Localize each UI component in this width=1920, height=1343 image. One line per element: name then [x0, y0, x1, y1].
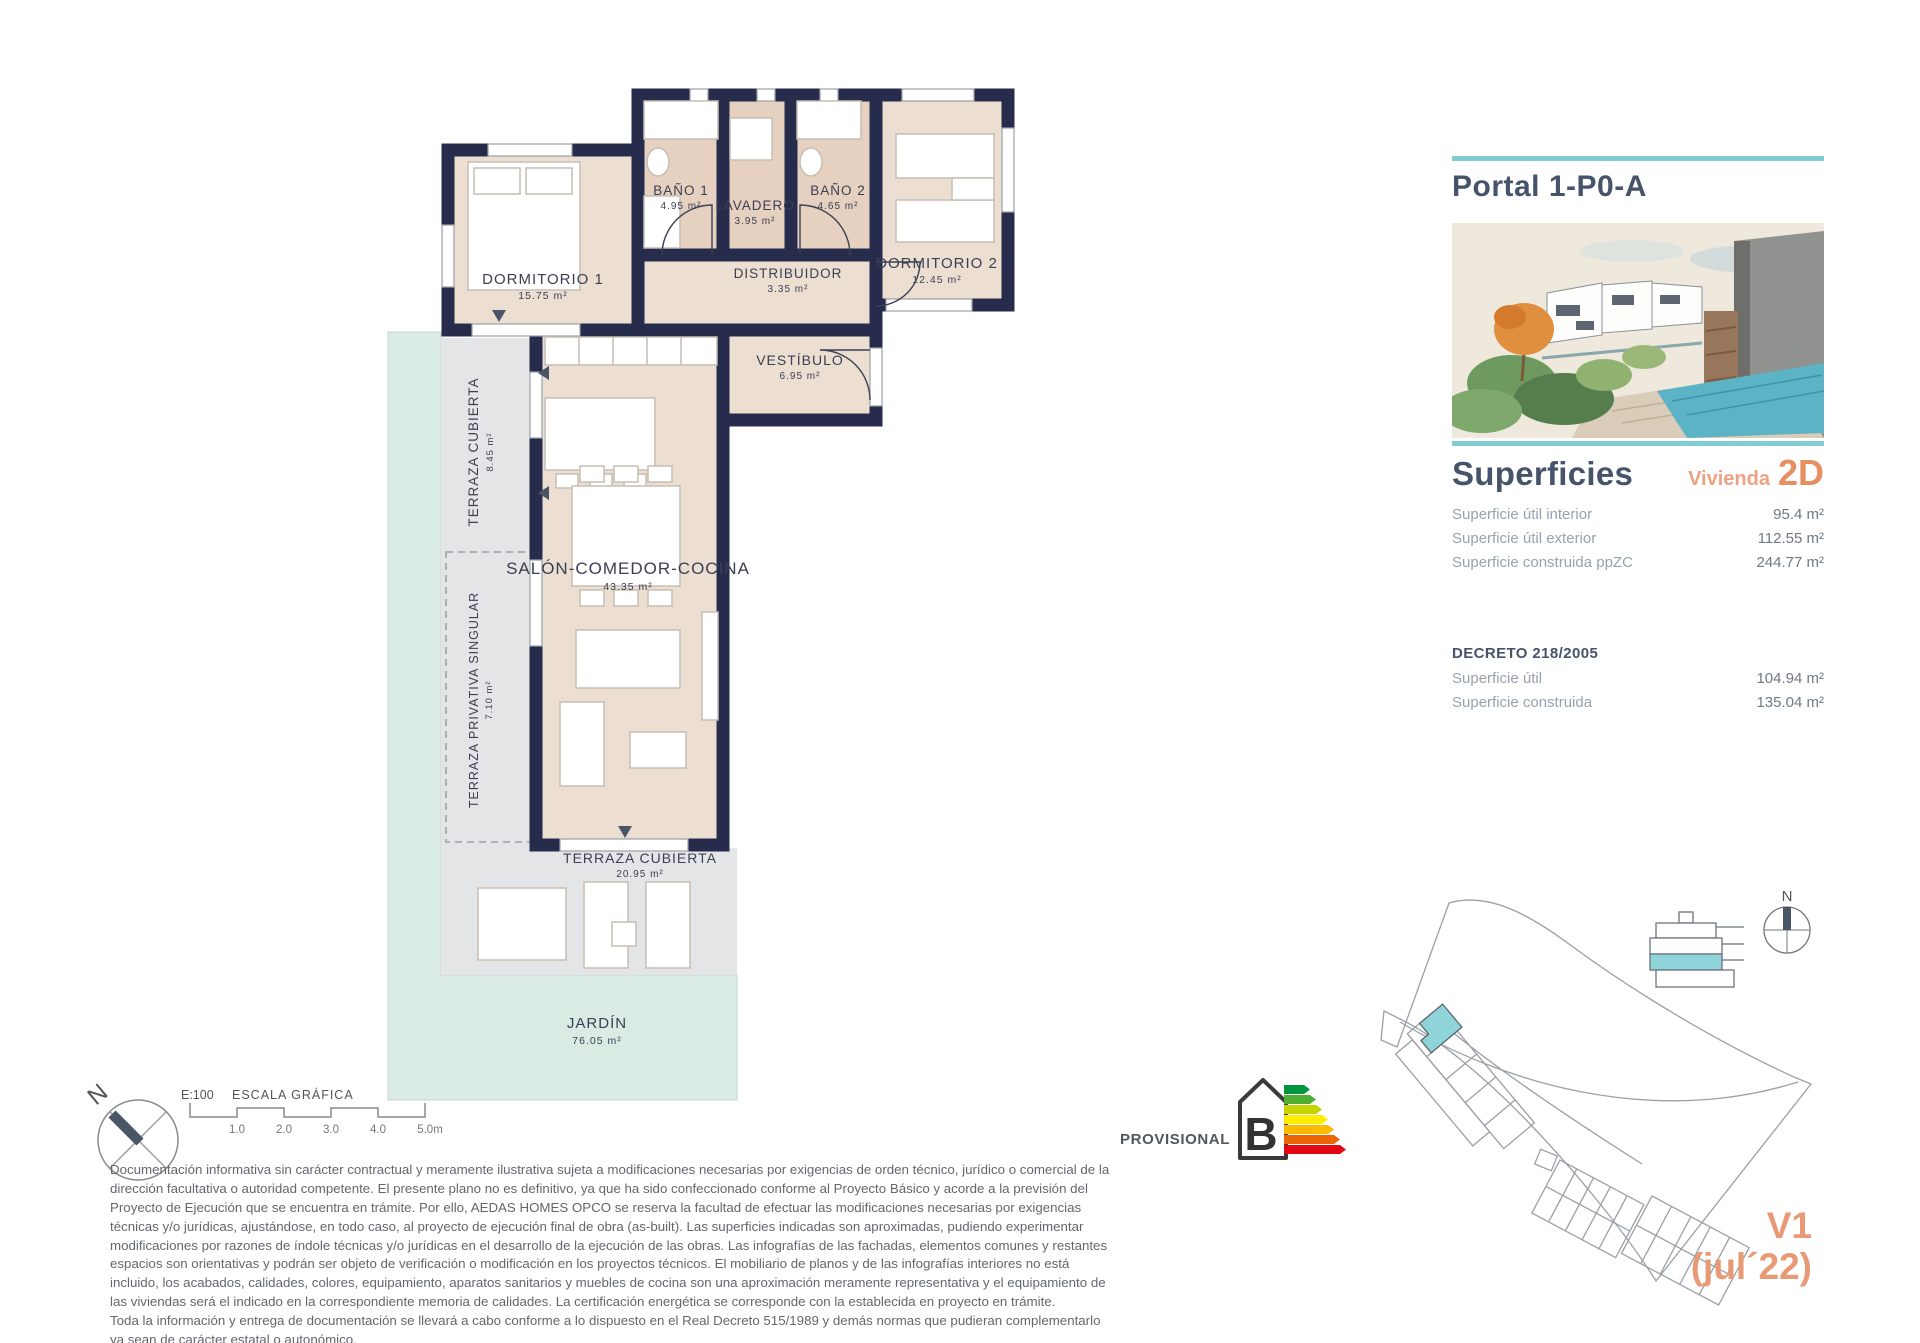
- label-bano-2: BAÑO 2: [810, 183, 866, 198]
- label-distribuidor: DISTRIBUIDOR: [734, 266, 843, 281]
- floorplan-sheet: DORMITORIO 1 15.75 m² BAÑO 1 4.95 m² LAV…: [0, 0, 1920, 1343]
- svg-text:7.10 m²: 7.10 m²: [484, 680, 495, 719]
- provisional-label: PROVISIONAL: [1098, 1131, 1230, 1148]
- version-code: V1: [1600, 1205, 1812, 1246]
- label-terraza-cubierta-left: TERRAZA CUBIERTA: [466, 377, 481, 526]
- svg-text:2.0: 2.0: [276, 1124, 292, 1136]
- decreto-table: Superficie útil 104.94 m² Superficie con…: [1452, 670, 1824, 718]
- disclaimer-paragraph-1: Documentación informativa sin carácter c…: [110, 1161, 1115, 1312]
- table-row: Superficie útil 104.94 m²: [1452, 670, 1824, 687]
- vivienda-label: Vivienda: [1688, 468, 1770, 491]
- compass-north-letter: N: [83, 1079, 114, 1111]
- energy-letter: B: [1244, 1108, 1277, 1160]
- label-vestibulo: VESTÍBULO: [756, 352, 844, 368]
- site-compass-icon: N: [1764, 888, 1810, 953]
- svg-text:5.0m: 5.0m: [417, 1124, 443, 1136]
- svg-text:8.45 m²: 8.45 m²: [485, 432, 496, 471]
- table-row: Superficie construida 135.04 m²: [1452, 694, 1824, 711]
- label-jardin: JARDÍN: [567, 1015, 627, 1032]
- plan-version: V1 (jul´22): [1600, 1205, 1812, 1288]
- legal-disclaimer: Documentación informativa sin carácter c…: [110, 1161, 1115, 1343]
- svg-text:43.35 m²: 43.35 m²: [603, 581, 652, 593]
- label-dormitorio-2: DORMITORIO 2: [876, 255, 998, 272]
- label-terraza-privativa: TERRAZA PRIVATIVA SINGULAR: [467, 592, 481, 808]
- svg-text:1.0: 1.0: [229, 1124, 245, 1136]
- page-title: Portal 1-P0-A: [1452, 170, 1647, 204]
- scale-ratio: E:100: [181, 1088, 214, 1102]
- superficies-table: Superficie útil interior 95.4 m² Superfi…: [1452, 506, 1824, 578]
- label-terraza-cubierta-bottom: TERRAZA CUBIERTA: [563, 850, 717, 866]
- site-building-row: [1391, 1004, 1540, 1163]
- table-row: Superficie útil interior 95.4 m²: [1452, 506, 1824, 523]
- table-row: Superficie útil exterior 112.55 m²: [1452, 530, 1824, 547]
- label-dormitorio-1: DORMITORIO 1: [482, 271, 604, 288]
- hero-illustration: [1452, 223, 1824, 438]
- table-row: Superficie construida ppZC 244.77 m²: [1452, 554, 1824, 571]
- site-elevation-diagram: [1650, 912, 1744, 987]
- accent-line-top: [1452, 156, 1824, 161]
- label-bano-1: BAÑO 1: [653, 183, 709, 198]
- energy-arrows: [1284, 1085, 1346, 1154]
- left-terrace-area: [441, 338, 536, 848]
- label-lavadero: LAVADERO: [715, 198, 795, 213]
- svg-text:4.95 m²: 4.95 m²: [661, 201, 702, 212]
- energy-label-icon: B: [1240, 1080, 1346, 1160]
- svg-text:15.75 m²: 15.75 m²: [518, 290, 567, 302]
- svg-text:3.0: 3.0: [323, 1124, 339, 1136]
- version-date: (jul´22): [1600, 1246, 1812, 1287]
- superficies-title: Superficies: [1452, 455, 1633, 493]
- svg-text:6.95 m²: 6.95 m²: [780, 371, 821, 382]
- svg-text:3.95 m²: 3.95 m²: [735, 216, 776, 227]
- svg-text:76.05 m²: 76.05 m²: [572, 1035, 621, 1047]
- disclaimer-paragraph-2: Toda la información y entrega de documen…: [110, 1312, 1115, 1343]
- elevation-highlighted-floor: [1650, 954, 1722, 970]
- label-salon: SALÓN-COMEDOR-COCINA: [506, 559, 750, 578]
- scale-label: ESCALA GRÁFICA: [232, 1087, 354, 1102]
- svg-text:4.0: 4.0: [370, 1124, 386, 1136]
- superficies-header: Superficies Vivienda 2D: [1452, 452, 1824, 494]
- accent-line-middle: [1452, 441, 1824, 446]
- svg-text:20.95 m²: 20.95 m²: [616, 869, 663, 880]
- vivienda-type: 2D: [1778, 452, 1824, 494]
- svg-text:3.35 m²: 3.35 m²: [768, 284, 809, 295]
- site-compass-north-letter: N: [1782, 888, 1793, 905]
- site-highlighted-unit: [1412, 1004, 1462, 1053]
- decreto-title: DECRETO 218/2005: [1452, 645, 1598, 662]
- svg-text:4.65 m²: 4.65 m²: [818, 201, 859, 212]
- svg-text:12.45 m²: 12.45 m²: [912, 274, 961, 286]
